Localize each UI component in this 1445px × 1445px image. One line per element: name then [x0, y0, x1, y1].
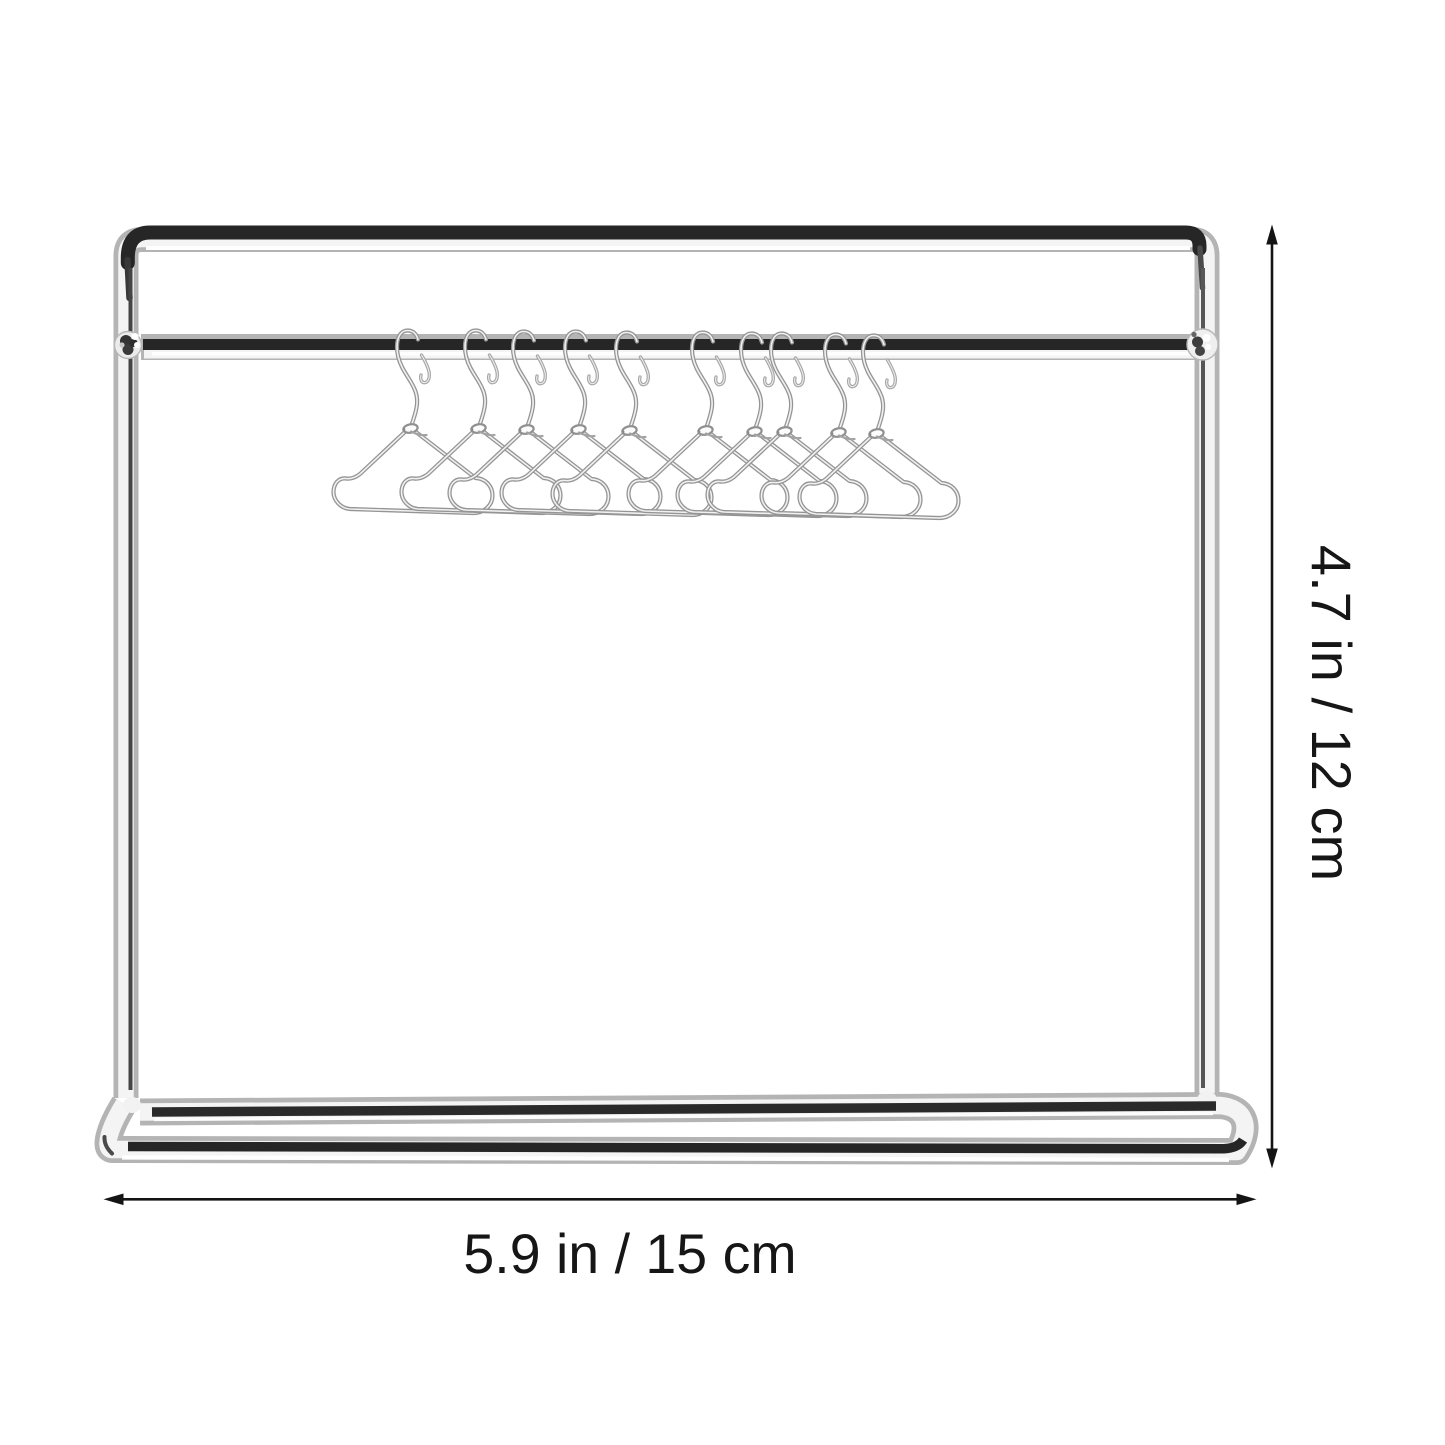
svg-text:4.7 in / 12 cm: 4.7 in / 12 cm: [1300, 545, 1363, 881]
svg-text:5.9 in / 15 cm: 5.9 in / 15 cm: [463, 1223, 796, 1285]
